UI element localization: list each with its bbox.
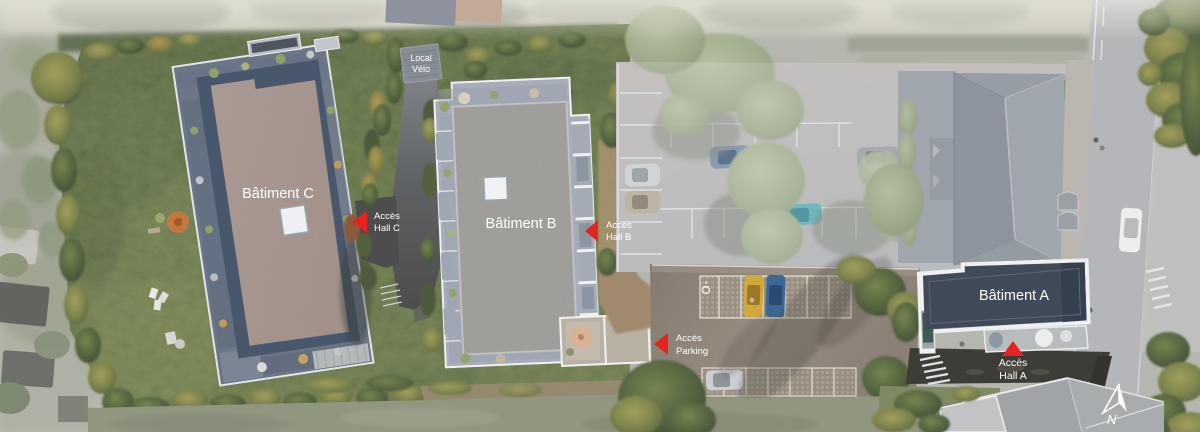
svg-text:Accès: Accès bbox=[374, 211, 400, 222]
svg-text:Parking: Parking bbox=[676, 346, 708, 357]
svg-text:Hall C: Hall C bbox=[374, 223, 400, 234]
svg-text:Accès: Accès bbox=[999, 357, 1028, 369]
svg-text:Hall A: Hall A bbox=[999, 370, 1026, 382]
svg-text:Hall B: Hall B bbox=[606, 232, 631, 243]
svg-text:Bâtiment B: Bâtiment B bbox=[486, 216, 557, 232]
svg-text:Local: Local bbox=[410, 53, 432, 63]
svg-text:N: N bbox=[1107, 412, 1117, 427]
svg-text:Accès: Accès bbox=[676, 333, 702, 344]
svg-text:Vélo: Vélo bbox=[412, 64, 430, 74]
svg-text:Bâtiment C: Bâtiment C bbox=[242, 186, 314, 202]
svg-text:Accès: Accès bbox=[606, 220, 632, 231]
svg-text:Bâtiment A: Bâtiment A bbox=[979, 288, 1049, 304]
